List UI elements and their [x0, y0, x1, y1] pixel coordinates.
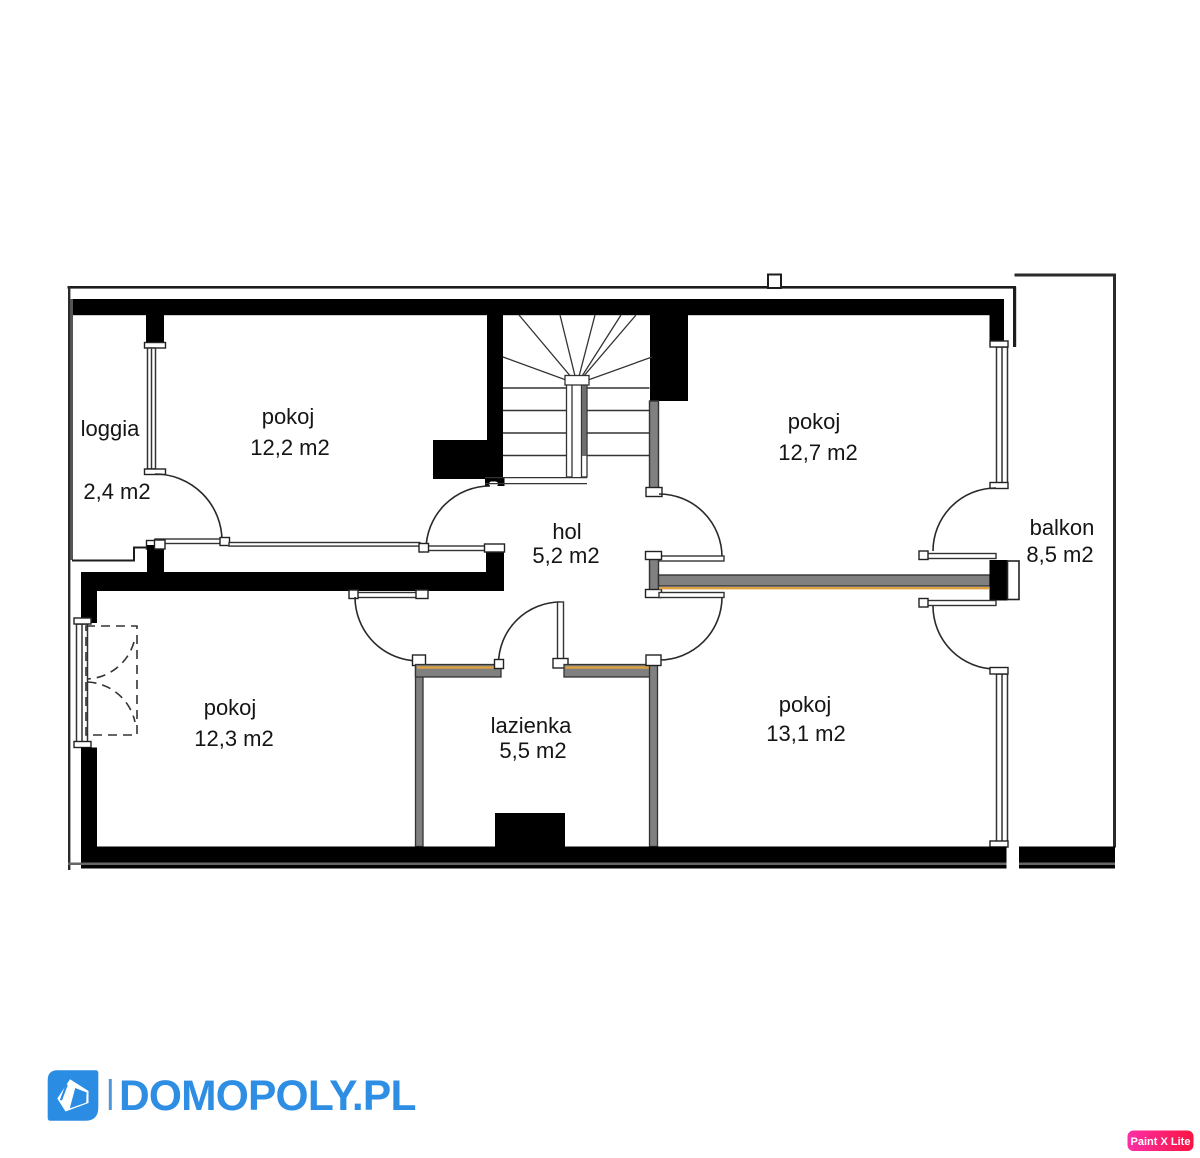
svg-text:13,1 m2: 13,1 m2	[766, 721, 846, 746]
svg-text:2,4 m2: 2,4 m2	[83, 479, 150, 504]
svg-text:pokoj: pokoj	[779, 692, 832, 717]
svg-text:pokoj: pokoj	[204, 695, 257, 720]
svg-text:8,5 m2: 8,5 m2	[1026, 542, 1093, 567]
svg-text:12,7 m2: 12,7 m2	[778, 440, 858, 465]
svg-text:pokoj: pokoj	[788, 409, 841, 434]
svg-text:loggia: loggia	[81, 416, 140, 441]
svg-text:5,2 m2: 5,2 m2	[532, 543, 599, 568]
svg-text:12,3 m2: 12,3 m2	[194, 726, 274, 751]
svg-text:pokoj: pokoj	[262, 404, 315, 429]
svg-text:hol: hol	[552, 519, 581, 544]
svg-text:5,5 m2: 5,5 m2	[499, 738, 566, 763]
svg-text:Paint X Lite: Paint X Lite	[1131, 1136, 1191, 1148]
svg-text:balkon: balkon	[1030, 515, 1095, 540]
svg-text:lazienka: lazienka	[491, 713, 572, 738]
svg-text:DOMOPOLY.PL: DOMOPOLY.PL	[119, 1073, 416, 1120]
svg-text:12,2 m2: 12,2 m2	[250, 435, 330, 460]
